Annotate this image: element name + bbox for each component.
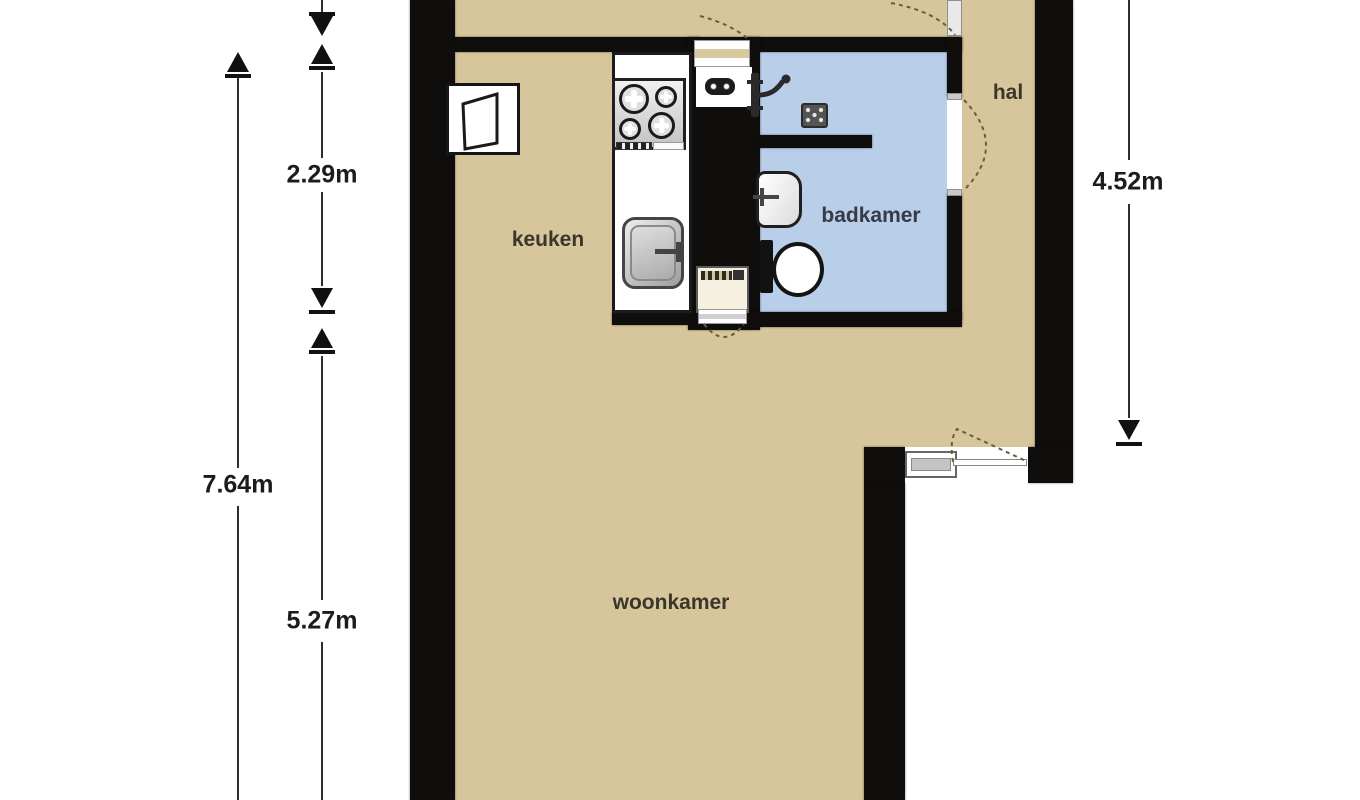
dim-hall-line-upper bbox=[1128, 0, 1130, 160]
hall-label: hal bbox=[993, 81, 1023, 105]
step-wall-left bbox=[864, 447, 905, 483]
dim-chain-line-top bbox=[321, 0, 323, 12]
dim-living-arrow-top bbox=[311, 328, 333, 348]
toilet-icon bbox=[772, 242, 824, 297]
dim-hall-arrow-bottom bbox=[1118, 420, 1140, 440]
stove-knobs bbox=[616, 142, 652, 150]
dim-living-line-lower bbox=[321, 642, 323, 800]
outer-wall-right-hall bbox=[1035, 0, 1073, 447]
wall-cabinet-icon bbox=[446, 83, 520, 155]
shower-partition-wall bbox=[758, 135, 872, 148]
living-room-label: woonkamer bbox=[613, 591, 730, 615]
dim-chain-arrow-1 bbox=[311, 16, 333, 36]
bathroom-door-opening bbox=[947, 97, 962, 193]
bathroom-door-frame-bottom bbox=[947, 189, 962, 196]
burner-large-br bbox=[648, 112, 675, 139]
step-wall-right bbox=[1028, 447, 1073, 483]
bathroom-top-wall bbox=[745, 37, 962, 52]
basin-tap-body bbox=[760, 188, 764, 206]
burner-small-tr bbox=[655, 86, 677, 108]
dim-kitchen-arrow-top bbox=[311, 44, 333, 64]
dim-kitchen-label: 2.29m bbox=[284, 161, 361, 190]
shower-drain-icon bbox=[801, 103, 828, 128]
terrace-door-leaf bbox=[953, 459, 1027, 466]
dim-living-line-upper bbox=[321, 356, 323, 600]
window-pane bbox=[911, 458, 951, 471]
washer-knobs bbox=[701, 271, 732, 280]
dim-total-line-lower bbox=[237, 506, 239, 800]
dim-living-tick-top bbox=[309, 350, 335, 354]
hall-floor bbox=[960, 0, 1035, 447]
counter-end-wall bbox=[612, 311, 692, 325]
dim-kitchen-line-upper bbox=[321, 72, 323, 158]
dim-kitchen-tick-bottom bbox=[309, 310, 335, 314]
dim-total-arrow-top bbox=[227, 52, 249, 72]
boiler-outlet-icon bbox=[696, 67, 752, 107]
burner-small-bl bbox=[619, 118, 641, 140]
dim-kitchen-arrow-bottom bbox=[311, 288, 333, 308]
bathroom-right-wall-lower bbox=[947, 193, 962, 320]
dim-hall-line-lower bbox=[1128, 204, 1130, 418]
bathroom-door-frame-top bbox=[947, 93, 962, 100]
washing-machine-icon bbox=[696, 266, 749, 313]
dim-total-line-upper bbox=[237, 78, 239, 468]
closet-top-door-leaf bbox=[694, 40, 750, 67]
kitchen-top-wall bbox=[455, 37, 700, 52]
dim-total-label: 7.64m bbox=[200, 471, 277, 500]
stove-front-strip bbox=[653, 142, 684, 150]
living-room-right-wall bbox=[864, 483, 905, 800]
stove-4-burner-icon bbox=[612, 78, 686, 150]
dim-hall-tick-bottom bbox=[1116, 442, 1142, 446]
washer-module bbox=[733, 270, 744, 280]
toilet-cistern bbox=[760, 240, 773, 293]
kitchen-floor bbox=[455, 52, 615, 800]
living-room-floor bbox=[610, 447, 868, 800]
kitchen-tap-body bbox=[676, 242, 682, 262]
floorplan-canvas: 7.64m 2.29m 5.27m 4.52m keuken badkamer … bbox=[0, 0, 1360, 800]
kitchen-label: keuken bbox=[512, 228, 584, 252]
bathroom-right-wall-upper bbox=[947, 37, 962, 97]
basin-tap-spout bbox=[753, 195, 779, 199]
dim-kitchen-tick-top bbox=[309, 66, 335, 70]
front-door-leaf bbox=[947, 0, 962, 36]
dim-kitchen-line-lower bbox=[321, 192, 323, 286]
closet-bottom-door-leaf bbox=[698, 309, 747, 324]
burner-large-tl bbox=[619, 84, 649, 114]
bathroom-bottom-wall bbox=[745, 312, 962, 327]
bathroom-label: badkamer bbox=[821, 204, 920, 228]
dim-hall-label: 4.52m bbox=[1090, 168, 1167, 197]
dim-living-label: 5.27m bbox=[284, 607, 361, 636]
